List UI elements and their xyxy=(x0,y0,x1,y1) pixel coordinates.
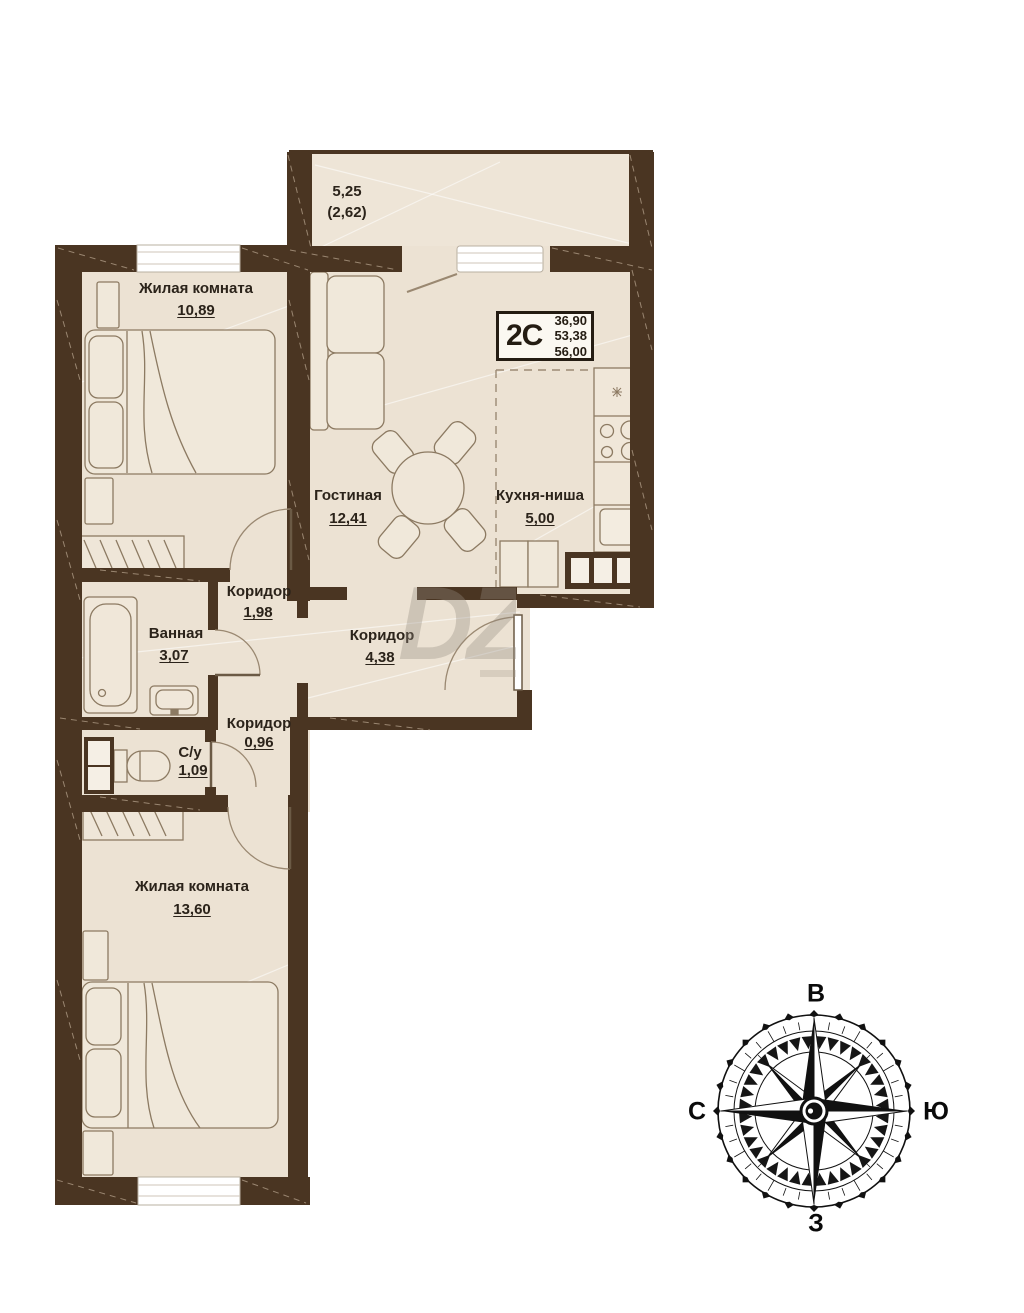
total-area-value: 56,00 xyxy=(554,344,587,359)
floor-plan-drawing xyxy=(0,0,1024,1313)
vent-icon xyxy=(612,387,622,397)
room-area-bedroom1: 10,89 xyxy=(177,303,215,320)
balcony-area-reduced: (2,62) xyxy=(327,204,366,221)
nightstand xyxy=(85,478,113,524)
pillow xyxy=(89,402,123,468)
apartment-type: 2C xyxy=(499,319,542,353)
toilet xyxy=(114,750,170,782)
cabinet xyxy=(528,541,558,587)
room-name-corridor2: Коридор xyxy=(350,628,415,645)
wardrobe-1 xyxy=(76,536,184,572)
apartment-info-box: 2C 36,90 53,38 56,00 xyxy=(496,311,594,361)
compass-label-west: З xyxy=(808,1210,824,1239)
room-area-wc: 1,09 xyxy=(178,763,207,780)
compass-label-north: С xyxy=(688,1098,706,1127)
compass-label-south: Ю xyxy=(923,1098,949,1127)
room-name-wc: С/у xyxy=(178,745,201,762)
room-area-bedroom2: 13,60 xyxy=(173,902,211,919)
pillow xyxy=(86,1049,121,1117)
compass-rose xyxy=(713,1010,915,1212)
room-name-bathroom: Ванная xyxy=(149,626,203,643)
room-area-corridor1: 1,98 xyxy=(243,605,272,622)
sofa xyxy=(310,272,384,430)
room-name-living: Гостиная xyxy=(314,488,382,505)
room-name-corridor3: Коридор xyxy=(227,716,292,733)
pillow xyxy=(89,336,123,398)
bathroom-sink xyxy=(150,686,198,715)
room-area-corridor2: 4,38 xyxy=(365,650,394,667)
nightstand xyxy=(97,282,119,328)
room-area-corridor3: 0,96 xyxy=(244,735,273,752)
living-area-value: 36,90 xyxy=(554,313,587,328)
pillow xyxy=(86,988,121,1045)
apartment-areas: 36,90 53,38 56,00 xyxy=(542,313,591,358)
room-area-bathroom: 3,07 xyxy=(159,648,188,665)
room-name-corridor1: Коридор xyxy=(227,584,292,601)
room-area-living: 12,41 xyxy=(329,511,367,528)
room-area-kitchen: 5,00 xyxy=(525,511,554,528)
room-name-bedroom2: Жилая комната xyxy=(135,879,249,896)
room-name-bedroom1: Жилая комната xyxy=(139,281,253,298)
window-bedroom1 xyxy=(137,245,240,272)
nightstand xyxy=(83,931,108,980)
room-name-kitchen: Кухня-ниша xyxy=(496,488,584,505)
bathtub xyxy=(84,597,137,713)
area-value: 53,38 xyxy=(554,328,587,343)
compass-label-east: В xyxy=(807,980,825,1009)
window-balcony-door xyxy=(457,246,543,272)
window-bedroom2 xyxy=(138,1177,240,1205)
nightstand xyxy=(83,1131,113,1175)
balcony-area: 5,25 xyxy=(332,183,361,200)
cabinet xyxy=(500,541,528,587)
